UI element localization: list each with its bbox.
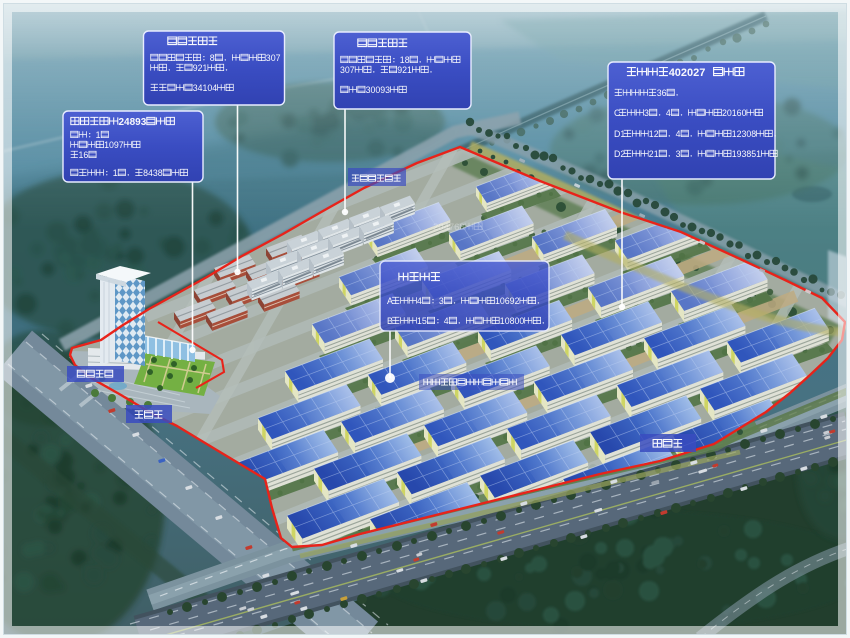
svg-text:3: 3 bbox=[644, 108, 649, 118]
svg-text:4: 4 bbox=[666, 108, 671, 118]
svg-text:20160: 20160 bbox=[722, 108, 747, 118]
svg-text:24893: 24893 bbox=[119, 117, 147, 128]
svg-text:8438: 8438 bbox=[143, 168, 163, 178]
svg-text:3: 3 bbox=[439, 296, 444, 306]
svg-text:21: 21 bbox=[649, 149, 659, 159]
svg-text:12308: 12308 bbox=[732, 129, 757, 139]
svg-text:36: 36 bbox=[657, 88, 667, 98]
svg-text:204768: 204768 bbox=[433, 222, 465, 233]
svg-text:193851: 193851 bbox=[732, 149, 761, 159]
svg-text:1097: 1097 bbox=[104, 140, 124, 150]
svg-text:307: 307 bbox=[340, 65, 355, 75]
svg-text:402027: 402027 bbox=[669, 67, 706, 79]
svg-text:10800: 10800 bbox=[500, 316, 525, 326]
svg-text:3: 3 bbox=[676, 149, 681, 159]
svg-text:10692: 10692 bbox=[495, 296, 520, 306]
svg-text:1: 1 bbox=[113, 168, 118, 178]
svg-text:16: 16 bbox=[79, 150, 89, 160]
svg-text:921: 921 bbox=[193, 63, 208, 73]
svg-text:4: 4 bbox=[444, 316, 449, 326]
svg-text:921: 921 bbox=[397, 65, 412, 75]
svg-text:4: 4 bbox=[417, 296, 422, 306]
svg-text:4: 4 bbox=[676, 129, 681, 139]
svg-text:1: 1 bbox=[96, 130, 101, 140]
svg-text:D1: D1 bbox=[614, 129, 625, 139]
svg-text:307: 307 bbox=[266, 53, 281, 63]
svg-text:15: 15 bbox=[417, 316, 427, 326]
svg-text:8: 8 bbox=[210, 53, 215, 63]
svg-text:34104: 34104 bbox=[193, 83, 218, 93]
svg-text:30093: 30093 bbox=[366, 85, 391, 95]
svg-text:12: 12 bbox=[649, 129, 659, 139]
svg-text:D2: D2 bbox=[614, 149, 625, 159]
svg-text:18: 18 bbox=[400, 55, 410, 65]
